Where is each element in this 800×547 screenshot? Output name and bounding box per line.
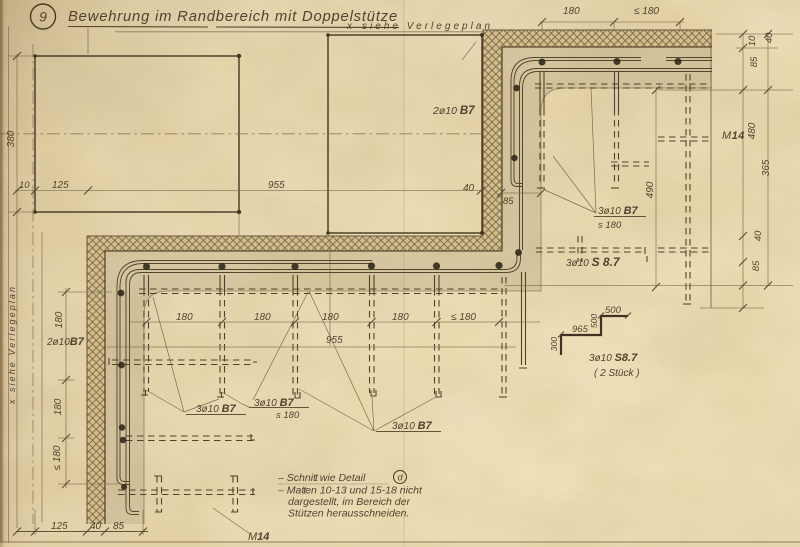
svg-text:3ø10 B7: 3ø10 B7 (598, 205, 639, 217)
svg-text:490: 490 (645, 181, 656, 198)
svg-text:– Matten 10-13 und 15-18 nicht: – Matten 10-13 und 15-18 nicht (277, 485, 423, 497)
svg-text:s 180: s 180 (276, 410, 300, 421)
svg-text:500: 500 (605, 305, 622, 316)
svg-text:180: 180 (392, 312, 409, 323)
svg-text:40: 40 (463, 183, 475, 194)
svg-text:180: 180 (54, 311, 65, 328)
svg-text:85: 85 (503, 196, 514, 207)
svg-text:10: 10 (747, 35, 758, 46)
svg-text:180: 180 (53, 398, 64, 415)
svg-text:180: 180 (322, 312, 339, 323)
svg-text:3ø10 B7: 3ø10 B7 (392, 420, 433, 432)
svg-text:3ø10 B7: 3ø10 B7 (196, 403, 237, 415)
svg-text:s 180: s 180 (598, 220, 622, 231)
svg-text:M14: M14 (722, 130, 745, 142)
svg-text:85: 85 (751, 260, 762, 271)
svg-text:380: 380 (6, 130, 17, 147)
svg-text:x: x (346, 21, 353, 32)
svg-text:85: 85 (749, 56, 760, 67)
svg-text:9: 9 (39, 9, 47, 25)
svg-text:≤ 180: ≤ 180 (634, 6, 659, 17)
svg-text:– Schnitt wie Detail: – Schnitt wie Detail (277, 472, 366, 484)
svg-text:40: 40 (90, 521, 102, 532)
svg-text:125: 125 (51, 521, 68, 532)
svg-text:10: 10 (19, 180, 30, 191)
svg-text:3ø10 S 8.7: 3ø10 S 8.7 (566, 255, 621, 269)
svg-text:955: 955 (268, 180, 285, 191)
svg-text:2ø10B7: 2ø10B7 (46, 336, 85, 348)
svg-text:365: 365 (761, 159, 772, 176)
svg-text:300: 300 (549, 337, 559, 351)
svg-text:dargestellt, im Bereich der: dargestellt, im Bereich der (288, 496, 410, 508)
svg-text:500: 500 (589, 314, 599, 328)
svg-text:965: 965 (572, 324, 589, 335)
svg-text:955: 955 (326, 335, 343, 346)
svg-text:M14: M14 (248, 531, 269, 543)
svg-text:≤ 180: ≤ 180 (52, 445, 63, 470)
svg-text:( 2 Stück ): ( 2 Stück ) (594, 368, 640, 379)
svg-text:≤ 180: ≤ 180 (451, 312, 476, 323)
svg-text:180: 180 (254, 312, 271, 323)
svg-text:3ø10 S8.7: 3ø10 S8.7 (589, 352, 638, 364)
svg-text:40: 40 (764, 32, 775, 43)
svg-text:85: 85 (113, 521, 125, 532)
svg-text:3ø10 B7: 3ø10 B7 (254, 397, 295, 409)
svg-text:180: 180 (563, 6, 580, 17)
svg-text:Stützen herausschneiden.: Stützen herausschneiden. (288, 508, 409, 520)
svg-text:480: 480 (747, 122, 758, 139)
svg-text:x: x (7, 399, 17, 405)
svg-text:180: 180 (176, 312, 193, 323)
svg-text:125: 125 (52, 180, 69, 191)
svg-text:40: 40 (753, 230, 764, 241)
svg-text:2ø10 B7: 2ø10 B7 (432, 105, 475, 117)
